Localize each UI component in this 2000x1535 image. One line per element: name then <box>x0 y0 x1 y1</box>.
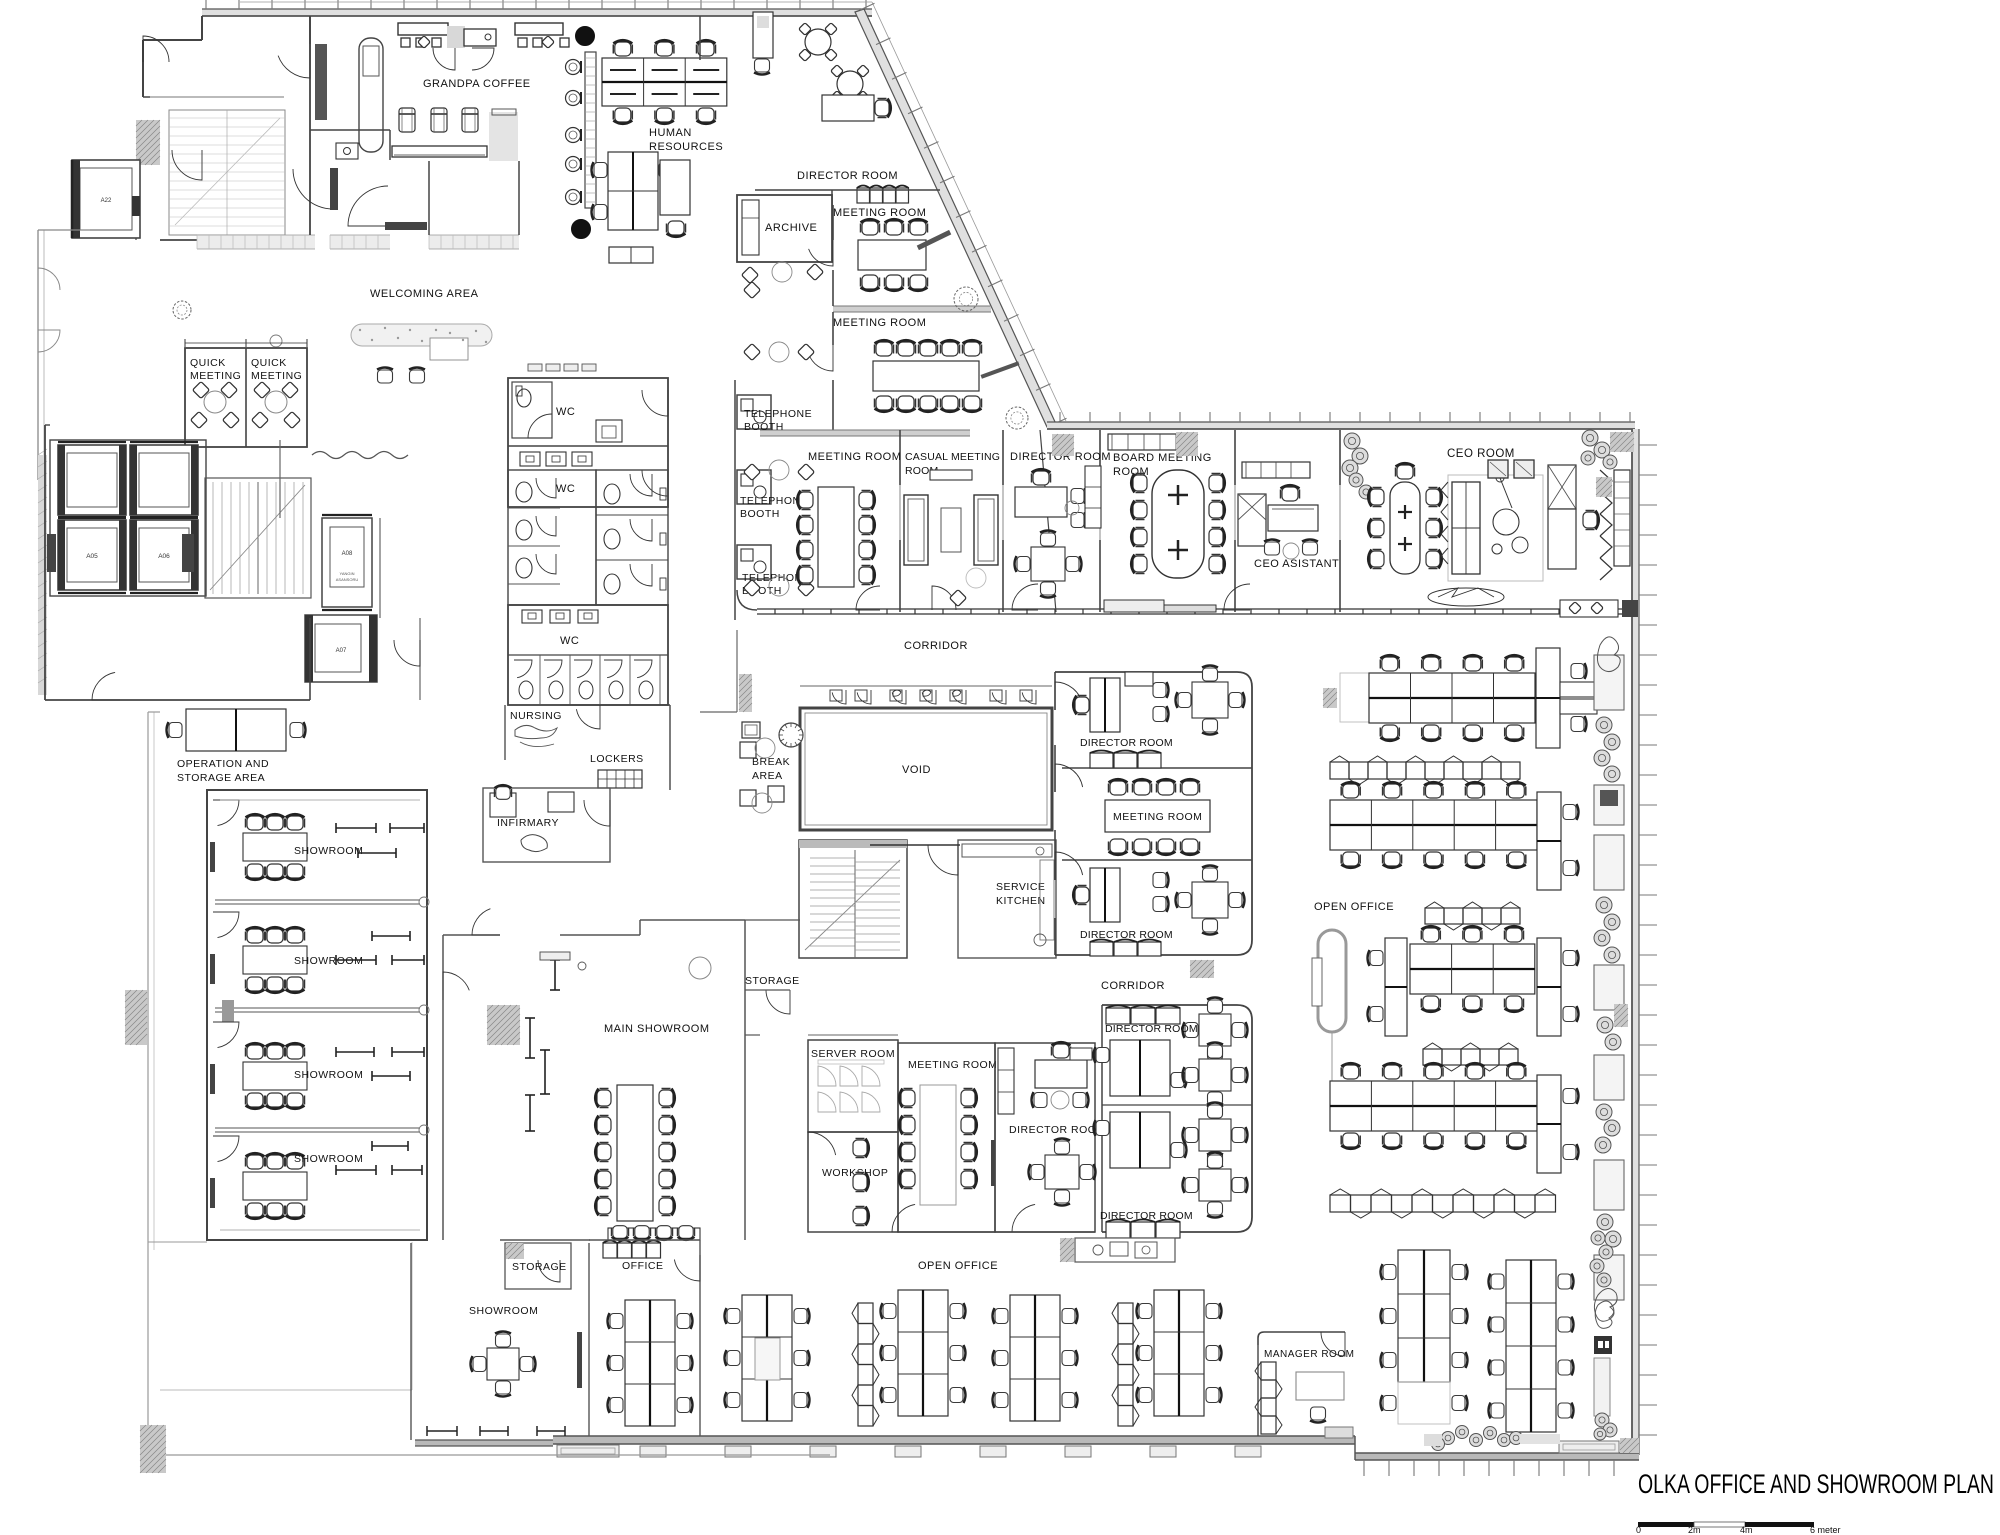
svg-text:OLKA OFFICE AND SHOWROOM PLAN: OLKA OFFICE AND SHOWROOM PLAN <box>1638 1469 1994 1499</box>
svg-text:MEETING ROOM: MEETING ROOM <box>808 451 901 463</box>
svg-text:DIRECTOR ROOM: DIRECTOR ROOM <box>797 170 898 182</box>
svg-text:TELEPHONE: TELEPHONE <box>744 408 812 420</box>
svg-text:A07: A07 <box>336 648 347 654</box>
svg-text:MEETING ROOM: MEETING ROOM <box>833 207 926 219</box>
svg-text:LOCKERS: LOCKERS <box>590 753 644 765</box>
svg-text:CORRIDOR: CORRIDOR <box>904 640 968 652</box>
svg-text:6 meter: 6 meter <box>1810 1525 1841 1535</box>
svg-text:CASUAL MEETING: CASUAL MEETING <box>905 451 1000 463</box>
svg-text:KITCHEN: KITCHEN <box>996 895 1046 907</box>
svg-text:BREAK: BREAK <box>752 756 790 768</box>
svg-text:SERVER ROOM: SERVER ROOM <box>811 1048 895 1060</box>
svg-text:DIRECTOR ROOM: DIRECTOR ROOM <box>1105 1023 1198 1035</box>
svg-text:MEETING ROOM: MEETING ROOM <box>908 1059 997 1071</box>
svg-text:MANAGER ROOM: MANAGER ROOM <box>1264 1349 1354 1360</box>
svg-text:GRANDPA COFFEE: GRANDPA COFFEE <box>423 78 531 90</box>
svg-text:MEETING ROOM: MEETING ROOM <box>1113 811 1202 823</box>
svg-text:QUICK: QUICK <box>251 357 287 369</box>
svg-text:DIRECTOR ROOM: DIRECTOR ROOM <box>1009 1124 1106 1136</box>
svg-text:OPEN OFFICE: OPEN OFFICE <box>1314 901 1394 913</box>
svg-text:OPERATION AND: OPERATION AND <box>177 758 269 770</box>
svg-text:SHOWROOM: SHOWROOM <box>294 1153 363 1165</box>
svg-text:A22: A22 <box>101 198 112 204</box>
svg-text:A08: A08 <box>342 551 353 557</box>
svg-text:MEETING: MEETING <box>190 370 241 382</box>
svg-text:OFFICE: OFFICE <box>622 1260 664 1272</box>
svg-text:INFIRMARY: INFIRMARY <box>497 817 559 829</box>
svg-text:2m: 2m <box>1688 1525 1701 1535</box>
svg-text:WC: WC <box>556 483 575 495</box>
svg-text:AREA: AREA <box>752 770 783 782</box>
svg-text:DIRECTOR ROOM: DIRECTOR ROOM <box>1100 1210 1193 1222</box>
svg-text:BOOTH: BOOTH <box>744 421 784 433</box>
svg-text:SHOWROOM: SHOWROOM <box>294 845 363 857</box>
svg-text:SHOWROOM: SHOWROOM <box>294 955 363 967</box>
svg-text:YANGIN: YANGIN <box>339 571 354 576</box>
svg-text:CEO ROOM: CEO ROOM <box>1447 448 1515 460</box>
svg-text:WC: WC <box>560 635 579 647</box>
svg-text:A06: A06 <box>158 553 170 560</box>
svg-text:NURSING: NURSING <box>510 710 562 722</box>
svg-text:CORRIDOR: CORRIDOR <box>1101 980 1165 992</box>
svg-text:STORAGE AREA: STORAGE AREA <box>177 772 265 784</box>
svg-text:4m: 4m <box>1740 1525 1753 1535</box>
svg-text:SHOWROOM: SHOWROOM <box>469 1305 538 1317</box>
svg-text:0: 0 <box>1636 1525 1641 1535</box>
svg-text:RESOURCES: RESOURCES <box>649 141 723 153</box>
svg-text:MEETING ROOM: MEETING ROOM <box>833 317 926 329</box>
svg-text:OPEN OFFICE: OPEN OFFICE <box>918 1260 998 1272</box>
svg-text:WC: WC <box>556 406 575 418</box>
svg-text:DIRECTOR ROOM: DIRECTOR ROOM <box>1080 737 1173 749</box>
svg-text:BOOTH: BOOTH <box>740 508 780 520</box>
svg-text:MAIN SHOWROOM: MAIN SHOWROOM <box>604 1023 710 1035</box>
svg-text:MEETING: MEETING <box>251 370 302 382</box>
svg-text:CEO ASISTANT: CEO ASISTANT <box>1254 558 1339 570</box>
svg-text:VOID: VOID <box>902 764 931 776</box>
svg-text:ARCHIVE: ARCHIVE <box>765 222 817 234</box>
svg-text:STORAGE: STORAGE <box>745 975 800 987</box>
svg-text:WELCOMING AREA: WELCOMING AREA <box>370 288 479 300</box>
svg-text:QUICK: QUICK <box>190 357 226 369</box>
svg-text:SHOWROOM: SHOWROOM <box>294 1069 363 1081</box>
svg-text:HUMAN: HUMAN <box>649 127 692 139</box>
svg-text:A05: A05 <box>86 553 98 560</box>
svg-text:ASANSORU: ASANSORU <box>336 577 359 582</box>
svg-text:SERVICE: SERVICE <box>996 881 1045 893</box>
